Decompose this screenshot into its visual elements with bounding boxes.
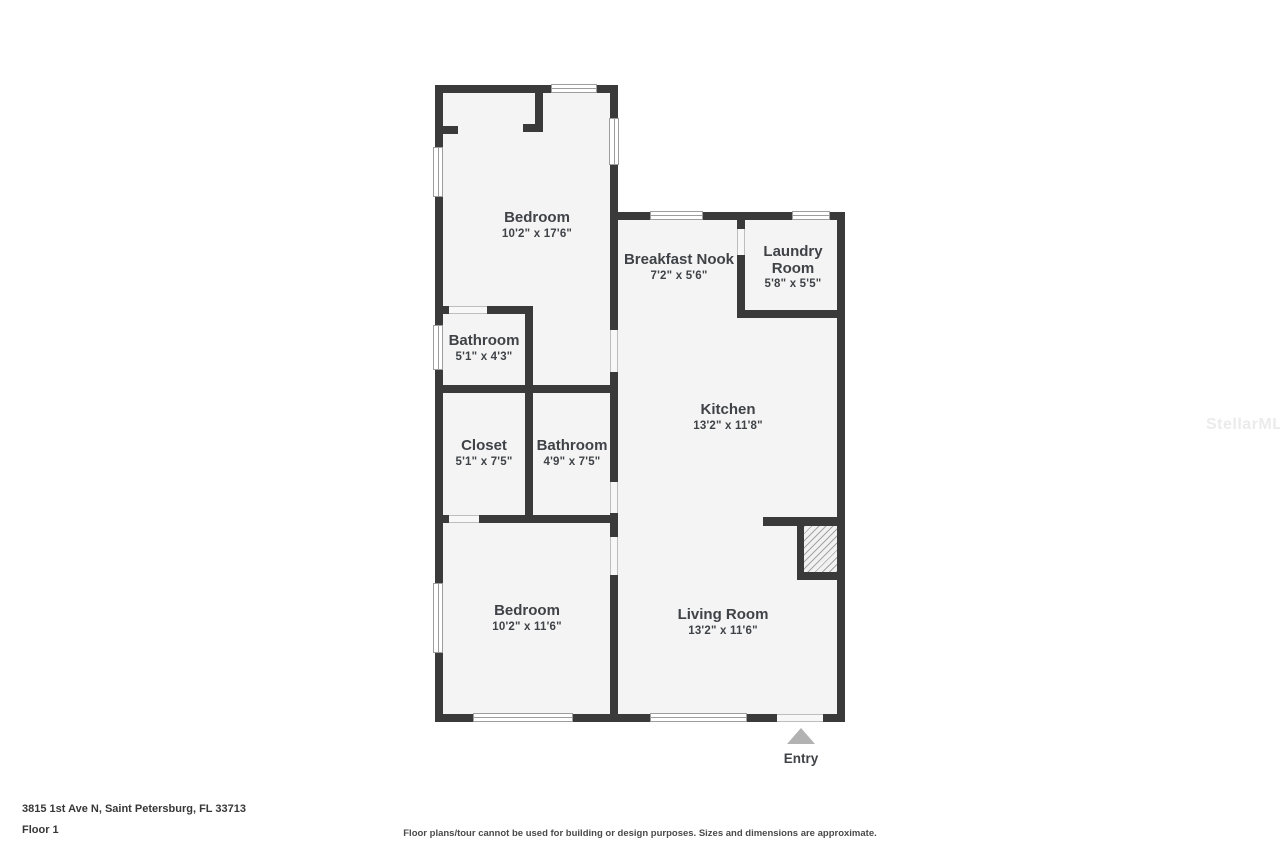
entry-arrow-icon	[787, 728, 815, 744]
room-label-kitchen: Kitchen 13'2" x 11'8"	[693, 401, 763, 434]
room-label-bedroom-upper: Bedroom 10'2" x 17'6"	[502, 209, 572, 242]
wall	[525, 306, 533, 393]
door-opening	[610, 482, 618, 513]
address-text: 3815 1st Ave N, Saint Petersburg, FL 337…	[22, 803, 246, 815]
wall	[763, 517, 845, 526]
wall	[610, 575, 618, 722]
window	[650, 713, 747, 722]
room-dims: 10'2" x 17'6"	[502, 227, 572, 242]
room-dims: 5'8" x 5'5"	[750, 277, 836, 292]
room-name: Living Room	[678, 606, 769, 624]
room-label-breakfast-nook: Breakfast Nook 7'2" x 5'6"	[624, 251, 734, 284]
entry-opening	[777, 714, 823, 722]
window	[792, 211, 830, 220]
window	[650, 211, 703, 220]
room-dims: 5'1" x 7'5"	[456, 455, 513, 470]
stellar-mls-watermark: StellarMLS	[1206, 416, 1280, 434]
door-opening	[737, 229, 745, 255]
wall	[525, 393, 533, 523]
wall	[435, 515, 449, 523]
wall	[837, 212, 845, 722]
room-name: Bathroom	[449, 332, 520, 350]
window	[433, 147, 443, 197]
window	[609, 118, 619, 165]
room-name: Bedroom	[502, 209, 572, 227]
window	[473, 713, 573, 722]
room-name: Bathroom	[537, 437, 608, 455]
room-dims: 10'2" x 11'6"	[492, 620, 562, 635]
window	[433, 325, 443, 370]
room-dims: 4'9" x 7'5"	[537, 455, 608, 470]
wall	[737, 255, 745, 318]
fireplace-hatch	[804, 526, 837, 572]
room-name: Laundry Room	[750, 243, 836, 277]
room-label-bedroom-lower: Bedroom 10'2" x 11'6"	[492, 602, 562, 635]
wall	[737, 220, 745, 229]
room-name: Breakfast Nook	[624, 251, 734, 269]
door-opening	[449, 306, 487, 314]
door-opening	[610, 537, 618, 575]
wall	[523, 124, 543, 132]
wall	[479, 515, 618, 523]
room-label-closet: Closet 5'1" x 7'5"	[456, 437, 513, 470]
wall	[443, 126, 458, 134]
window	[433, 583, 443, 653]
wall	[797, 572, 845, 580]
room-dims: 5'1" x 4'3"	[449, 350, 520, 365]
disclaimer-text: Floor plans/tour cannot be used for buil…	[0, 828, 1280, 839]
room-label-bathroom-middle: Bathroom 4'9" x 7'5"	[537, 437, 608, 470]
window	[551, 84, 597, 93]
room-name: Kitchen	[693, 401, 763, 419]
entry-label: Entry	[784, 751, 819, 766]
wall	[610, 165, 618, 330]
wall	[610, 85, 618, 118]
room-dims: 7'2" x 5'6"	[624, 269, 734, 284]
wall	[797, 517, 804, 580]
wall	[435, 385, 618, 393]
room-label-laundry-room: Laundry Room 5'8" x 5'5"	[750, 243, 836, 292]
room-name: Bedroom	[492, 602, 562, 620]
door-opening	[449, 515, 479, 523]
wall	[435, 306, 449, 314]
room-label-living-room: Living Room 13'2" x 11'6"	[678, 606, 769, 639]
wall	[737, 310, 845, 318]
room-name: Closet	[456, 437, 513, 455]
floor-plan-page: { "floorplan": { "wall_color": "#3a3a3a"…	[0, 0, 1280, 853]
room-dims: 13'2" x 11'6"	[678, 624, 769, 639]
room-dims: 13'2" x 11'8"	[693, 419, 763, 434]
room-label-bathroom-upper: Bathroom 5'1" x 4'3"	[449, 332, 520, 365]
door-opening	[610, 330, 618, 372]
